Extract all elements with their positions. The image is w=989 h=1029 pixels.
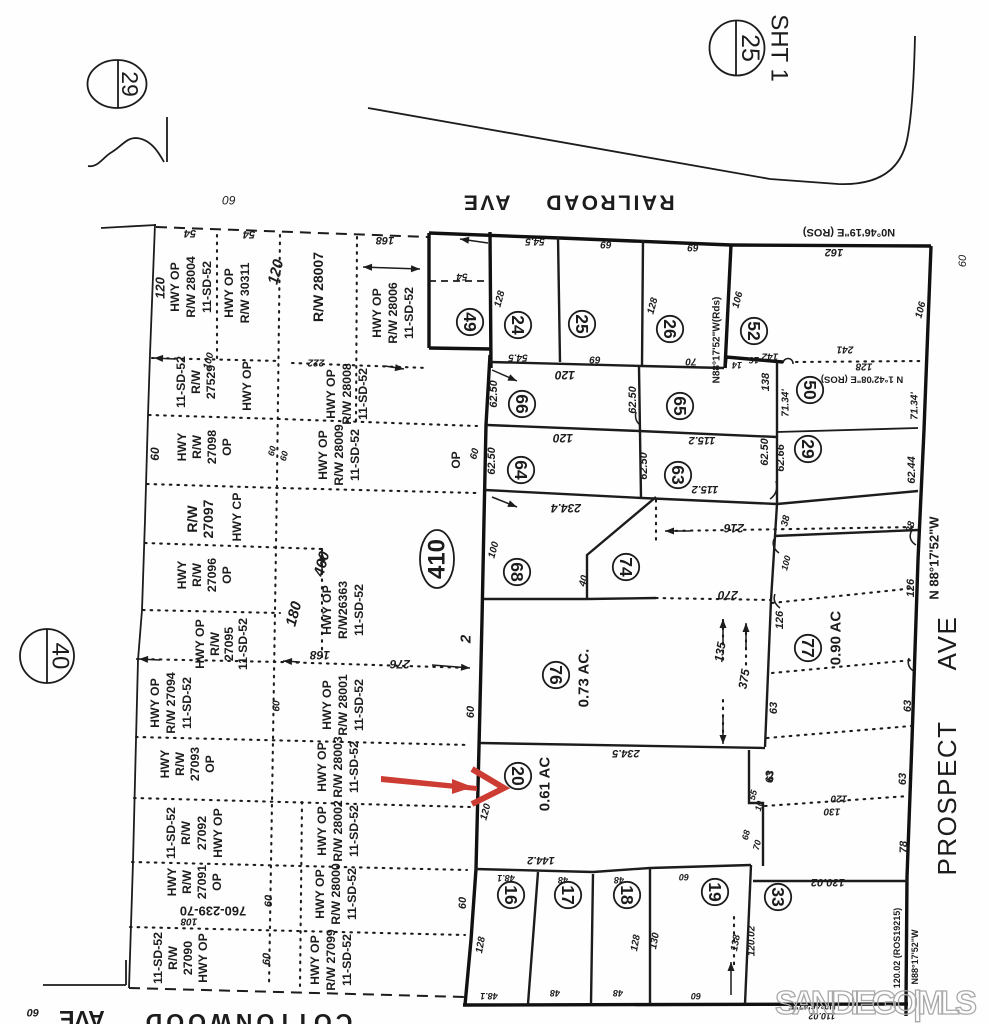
svg-text:HWY OP: HWY OP bbox=[315, 806, 329, 856]
svg-text:SAN DIEGO|MLS: SAN DIEGO|MLS bbox=[775, 984, 977, 1021]
svg-text:234.5: 234.5 bbox=[611, 747, 640, 759]
svg-text:R/W: R/W bbox=[173, 752, 187, 776]
svg-text:120: 120 bbox=[830, 793, 847, 804]
svg-text:26: 26 bbox=[660, 319, 680, 339]
svg-text:54: 54 bbox=[184, 227, 196, 239]
svg-text:HWY OP: HWY OP bbox=[316, 430, 330, 480]
svg-text:N88°17'52"W(Rds): N88°17'52"W(Rds) bbox=[712, 297, 723, 384]
svg-text:14: 14 bbox=[732, 360, 742, 370]
svg-text:AVE: AVE bbox=[932, 616, 962, 671]
svg-text:60: 60 bbox=[263, 894, 275, 907]
svg-text:HWY OP: HWY OP bbox=[324, 369, 338, 419]
svg-text:62.44: 62.44 bbox=[906, 456, 918, 484]
svg-text:25: 25 bbox=[736, 34, 764, 62]
svg-text:11-SD-52: 11-SD-52 bbox=[151, 932, 165, 984]
svg-text:130.02: 130.02 bbox=[811, 876, 845, 888]
svg-text:142: 142 bbox=[761, 351, 778, 362]
svg-text:HWY OP: HWY OP bbox=[240, 361, 254, 411]
svg-text:60: 60 bbox=[957, 254, 969, 267]
svg-text:HWY OP: HWY OP bbox=[168, 262, 182, 312]
svg-text:R/W 28007: R/W 28007 bbox=[310, 252, 326, 322]
svg-text:HWY OP: HWY OP bbox=[193, 619, 207, 669]
svg-text:19: 19 bbox=[705, 882, 725, 902]
svg-text:126: 126 bbox=[905, 578, 917, 597]
svg-text:27098: 27098 bbox=[205, 430, 219, 464]
svg-text:48.1: 48.1 bbox=[480, 991, 499, 1001]
svg-text:216: 216 bbox=[724, 521, 745, 535]
svg-text:0.90 AC: 0.90 AC bbox=[828, 611, 845, 666]
svg-text:78: 78 bbox=[898, 840, 910, 853]
svg-text:11-SD-52: 11-SD-52 bbox=[347, 805, 361, 857]
svg-text:70: 70 bbox=[685, 356, 697, 367]
svg-text:N 88°17'52"W: N 88°17'52"W bbox=[927, 516, 942, 600]
svg-text:11-SD-52: 11-SD-52 bbox=[345, 868, 359, 920]
svg-text:27093: 27093 bbox=[188, 747, 202, 781]
svg-text:16: 16 bbox=[501, 885, 521, 905]
svg-text:62.50: 62.50 bbox=[486, 446, 498, 474]
svg-text:63: 63 bbox=[766, 770, 777, 782]
svg-text:11-SD-52: 11-SD-52 bbox=[200, 261, 214, 313]
svg-text:R/W 30311: R/W 30311 bbox=[238, 262, 252, 323]
svg-text:62.50: 62.50 bbox=[638, 451, 650, 479]
svg-text:77: 77 bbox=[798, 638, 818, 657]
svg-text:126: 126 bbox=[774, 610, 786, 629]
svg-text:N0°46'19"E (ROS): N0°46'19"E (ROS) bbox=[803, 226, 896, 238]
svg-text:COTTONWOOD: COTTONWOOD bbox=[142, 1009, 353, 1024]
svg-text:234.4: 234.4 bbox=[551, 501, 582, 515]
svg-text:16: 16 bbox=[748, 355, 759, 365]
svg-text:OP: OP bbox=[203, 755, 217, 773]
svg-text:11-SD-52: 11-SD-52 bbox=[174, 356, 188, 408]
svg-text:63: 63 bbox=[668, 465, 688, 485]
svg-text:R/W: R/W bbox=[179, 821, 193, 845]
svg-text:60: 60 bbox=[26, 1006, 39, 1018]
svg-text:60: 60 bbox=[465, 705, 477, 718]
svg-text:27097: 27097 bbox=[200, 499, 216, 538]
svg-text:222: 222 bbox=[307, 357, 325, 368]
svg-text:11-SD-52: 11-SD-52 bbox=[347, 741, 361, 793]
svg-text:71.34': 71.34' bbox=[781, 389, 792, 417]
svg-text:HWY OP: HWY OP bbox=[370, 288, 384, 338]
svg-text:63: 63 bbox=[902, 700, 914, 712]
svg-text:29: 29 bbox=[117, 71, 143, 97]
svg-text:24: 24 bbox=[508, 315, 528, 335]
svg-text:71.34': 71.34' bbox=[910, 392, 921, 420]
svg-text:60: 60 bbox=[457, 896, 469, 909]
svg-text:HWY OP: HWY OP bbox=[222, 268, 236, 318]
svg-text:60: 60 bbox=[261, 952, 273, 965]
svg-text:R/W 28009: R/W 28009 bbox=[332, 424, 346, 486]
svg-text:SHT 1: SHT 1 bbox=[766, 14, 793, 82]
svg-text:128: 128 bbox=[855, 361, 872, 372]
svg-text:HWY: HWY bbox=[175, 433, 189, 462]
svg-text:R/W: R/W bbox=[184, 505, 200, 533]
svg-text:HWY CP: HWY CP bbox=[230, 493, 244, 542]
svg-text:115.2: 115.2 bbox=[692, 483, 719, 495]
svg-text:60: 60 bbox=[148, 447, 162, 461]
svg-text:R/W: R/W bbox=[190, 435, 204, 459]
svg-text:OP: OP bbox=[220, 438, 234, 456]
svg-text:168: 168 bbox=[375, 234, 394, 246]
svg-text:54: 54 bbox=[243, 228, 255, 240]
svg-text:R/W: R/W bbox=[190, 563, 204, 587]
svg-text:54.5: 54.5 bbox=[525, 236, 545, 247]
svg-text:18: 18 bbox=[617, 885, 637, 905]
svg-text:48: 48 bbox=[614, 875, 625, 885]
svg-text:R/W 28002: R/W 28002 bbox=[331, 800, 345, 862]
svg-text:11-SD-52: 11-SD-52 bbox=[236, 618, 250, 670]
svg-text:N 1°42'08"E (ROS): N 1°42'08"E (ROS) bbox=[821, 374, 903, 385]
svg-text:162: 162 bbox=[825, 246, 843, 258]
svg-text:HWY OP: HWY OP bbox=[320, 680, 334, 730]
svg-text:168: 168 bbox=[310, 648, 330, 662]
svg-text:R/W 28008: R/W 28008 bbox=[340, 363, 354, 425]
svg-text:65: 65 bbox=[670, 396, 690, 416]
svg-text:11-SD-52: 11-SD-52 bbox=[164, 807, 178, 859]
svg-text:27091: 27091 bbox=[195, 865, 209, 899]
svg-text:130: 130 bbox=[823, 806, 840, 817]
svg-text:63: 63 bbox=[897, 773, 909, 785]
svg-text:2: 2 bbox=[458, 634, 475, 644]
svg-text:27090: 27090 bbox=[181, 941, 195, 975]
svg-text:R/W: R/W bbox=[189, 370, 203, 394]
svg-text:54: 54 bbox=[456, 271, 468, 282]
svg-text:HWY: HWY bbox=[175, 561, 189, 590]
svg-text:R/W: R/W bbox=[208, 632, 222, 656]
svg-text:69: 69 bbox=[687, 242, 699, 253]
svg-text:R/W 27094: R/W 27094 bbox=[164, 672, 178, 734]
svg-text:60: 60 bbox=[272, 700, 283, 712]
svg-text:R/W 28003: R/W 28003 bbox=[331, 736, 345, 798]
svg-text:R/W: R/W bbox=[166, 946, 180, 970]
svg-text:11-SD-52: 11-SD-52 bbox=[348, 429, 362, 481]
svg-text:R/W: R/W bbox=[180, 870, 194, 894]
svg-text:108: 108 bbox=[180, 916, 197, 927]
svg-text:52: 52 bbox=[744, 321, 764, 341]
svg-text:27095: 27095 bbox=[222, 627, 236, 661]
svg-text:138: 138 bbox=[760, 372, 772, 391]
svg-text:76: 76 bbox=[546, 665, 566, 685]
svg-text:HWY: HWY bbox=[165, 868, 179, 897]
svg-text:270: 270 bbox=[718, 588, 739, 602]
svg-text:20: 20 bbox=[508, 766, 528, 786]
svg-text:PROSPECT: PROSPECT bbox=[932, 720, 962, 875]
svg-text:11-SD-52: 11-SD-52 bbox=[180, 677, 194, 729]
svg-text:R/W 27099: R/W 27099 bbox=[324, 929, 338, 991]
svg-text:63: 63 bbox=[768, 702, 780, 714]
svg-text:0.61 AC: 0.61 AC bbox=[537, 757, 554, 812]
svg-text:120: 120 bbox=[553, 431, 573, 445]
svg-text:74: 74 bbox=[616, 557, 636, 577]
svg-text:48: 48 bbox=[550, 988, 561, 998]
svg-text:11-SD-52: 11-SD-52 bbox=[352, 679, 366, 731]
svg-text:25: 25 bbox=[572, 314, 592, 334]
svg-text:OP: OP bbox=[210, 873, 224, 891]
svg-text:60: 60 bbox=[222, 193, 236, 207]
svg-text:120.02: 120.02 bbox=[747, 925, 758, 956]
svg-text:144.2: 144.2 bbox=[527, 854, 555, 866]
svg-text:HWY OP: HWY OP bbox=[320, 585, 334, 635]
svg-text:60: 60 bbox=[679, 872, 689, 882]
svg-text:54.5: 54.5 bbox=[508, 352, 528, 363]
svg-text:68: 68 bbox=[507, 562, 527, 582]
svg-text:R/W 28006: R/W 28006 bbox=[386, 282, 400, 344]
svg-text:HWY OP: HWY OP bbox=[211, 808, 225, 858]
svg-text:27096: 27096 bbox=[205, 558, 219, 592]
svg-text:11-SD-52: 11-SD-52 bbox=[356, 368, 370, 420]
svg-text:62.50: 62.50 bbox=[488, 379, 500, 407]
svg-text:11-SD-52: 11-SD-52 bbox=[402, 287, 416, 339]
svg-text:11-SD-52: 11-SD-52 bbox=[340, 934, 354, 986]
svg-text:62.50: 62.50 bbox=[627, 385, 639, 413]
svg-text:276: 276 bbox=[390, 657, 411, 671]
svg-text:AVE: AVE bbox=[59, 1006, 105, 1024]
svg-text:HWY OP: HWY OP bbox=[313, 869, 327, 919]
svg-text:60: 60 bbox=[691, 991, 701, 1001]
svg-text:R/W 28000: R/W 28000 bbox=[329, 863, 343, 925]
svg-text:29: 29 bbox=[798, 439, 818, 459]
svg-text:OP: OP bbox=[220, 566, 234, 584]
svg-text:R/W 28004: R/W 28004 bbox=[184, 256, 198, 318]
svg-text:120.02 (ROS19215): 120.02 (ROS19215) bbox=[892, 908, 902, 989]
svg-text:HWY OP: HWY OP bbox=[148, 678, 162, 728]
svg-text:64: 64 bbox=[511, 460, 531, 480]
svg-text:49: 49 bbox=[460, 312, 480, 332]
svg-text:OP: OP bbox=[449, 451, 463, 468]
svg-text:241: 241 bbox=[836, 344, 854, 355]
svg-text:RAILROAD AVE: RAILROAD AVE bbox=[461, 191, 674, 214]
svg-text:N88°17'52"W: N88°17'52"W bbox=[910, 929, 920, 985]
svg-text:HWY OP: HWY OP bbox=[308, 935, 322, 985]
svg-text:11-SD-52: 11-SD-52 bbox=[352, 584, 366, 636]
svg-text:48.1: 48.1 bbox=[497, 873, 516, 883]
svg-text:40: 40 bbox=[47, 643, 74, 670]
svg-text:HWY OP: HWY OP bbox=[315, 742, 329, 792]
svg-text:120: 120 bbox=[555, 368, 575, 382]
svg-text:27092: 27092 bbox=[195, 816, 209, 850]
svg-text:R/W 28001: R/W 28001 bbox=[336, 674, 350, 736]
svg-text:69: 69 bbox=[589, 354, 601, 365]
svg-text:48: 48 bbox=[558, 875, 569, 885]
svg-text:R/W26363: R/W26363 bbox=[336, 581, 350, 639]
svg-text:17: 17 bbox=[558, 885, 578, 904]
svg-text:33: 33 bbox=[768, 887, 788, 907]
svg-text:HWY: HWY bbox=[158, 750, 172, 779]
svg-text:69: 69 bbox=[600, 239, 612, 250]
svg-text:120: 120 bbox=[153, 276, 168, 298]
svg-text:50: 50 bbox=[800, 380, 820, 400]
svg-text:0.73 AC.: 0.73 AC. bbox=[576, 649, 593, 708]
svg-text:HWY OP: HWY OP bbox=[196, 933, 210, 983]
svg-text:66: 66 bbox=[512, 394, 532, 414]
svg-text:48: 48 bbox=[613, 988, 624, 998]
svg-text:410: 410 bbox=[424, 539, 451, 579]
svg-text:62.50: 62.50 bbox=[759, 437, 771, 465]
svg-text:62.66: 62.66 bbox=[775, 443, 787, 471]
svg-text:115.2: 115.2 bbox=[689, 434, 716, 446]
